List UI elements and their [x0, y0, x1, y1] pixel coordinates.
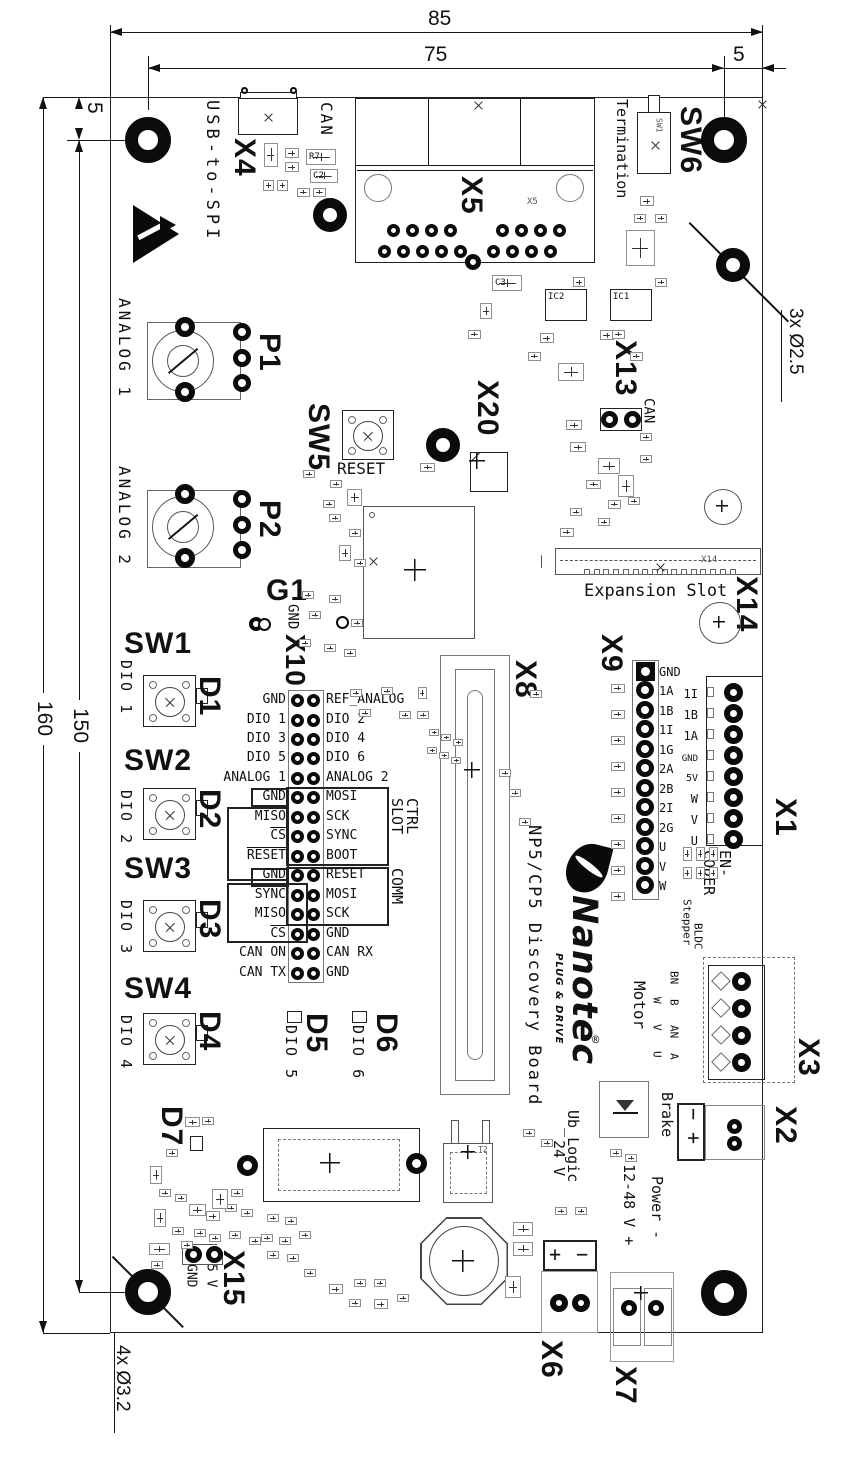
refdes: IC2	[548, 292, 564, 302]
smd-pad	[655, 278, 667, 287]
smd-pad	[381, 687, 393, 695]
label-stepper: Stepper	[681, 899, 693, 945]
smd-pad	[634, 214, 646, 223]
smd-pad	[324, 644, 336, 652]
label-x6: X6	[536, 1340, 566, 1379]
esd-warning-hand	[160, 216, 176, 234]
dim-line-5-right	[724, 68, 786, 69]
dim-board-width: 85	[428, 8, 451, 29]
smd-pad	[709, 847, 718, 861]
smd-pad	[303, 470, 315, 478]
x1-pin-label: V	[668, 811, 698, 829]
label-usb-to-spi: USB-to-SPI	[202, 100, 220, 242]
button-corner-dot	[182, 714, 190, 722]
smd-pad	[349, 529, 361, 537]
x9-pin	[636, 779, 654, 797]
smd-pad	[630, 352, 643, 361]
small-hole	[426, 428, 460, 462]
smd-pad	[608, 500, 621, 509]
button-corner-dot	[182, 939, 190, 947]
smd-pad	[513, 1242, 533, 1256]
smd-pad	[359, 709, 371, 717]
smd-pad	[570, 442, 586, 452]
pot-pin	[175, 484, 195, 504]
dim-small-holes-note: 3x Ø2.5	[786, 308, 805, 375]
x1-pin	[724, 683, 743, 702]
x14-pin	[720, 569, 726, 575]
smd-pad	[655, 214, 667, 223]
label-p2: P2	[254, 500, 284, 539]
x2-pin	[727, 1136, 742, 1151]
smd-pad	[418, 687, 427, 699]
smd-pad	[297, 188, 310, 197]
smd-pad	[349, 1299, 361, 1307]
pot-pin	[175, 548, 195, 568]
label-d1: D1	[194, 676, 224, 716]
x6-pin	[550, 1294, 568, 1312]
smd-pad	[344, 649, 356, 657]
label-g1-gnd: GND	[285, 604, 300, 629]
x5-pin	[506, 245, 519, 258]
label-can-x13: CAN	[641, 398, 656, 423]
capacitor-c2: C2	[310, 169, 338, 183]
smd-pad	[202, 1117, 214, 1125]
smd-pad	[626, 230, 655, 266]
x13-pin	[601, 411, 618, 428]
center-cross-mark	[320, 1153, 340, 1173]
button-corner-dot	[348, 447, 356, 455]
center-cross-mark	[461, 1145, 475, 1159]
dim-arrow	[75, 97, 83, 109]
smd-pad	[611, 762, 625, 771]
smd-pad	[541, 1139, 553, 1147]
termination-switch-refdes: SW1	[654, 118, 662, 132]
x2-pin	[727, 1119, 742, 1134]
center-cross-mark	[716, 500, 728, 512]
smd-pad	[267, 1251, 279, 1259]
smd-pad	[249, 1237, 261, 1245]
smd-pad	[267, 1214, 279, 1222]
x1-notch	[707, 834, 714, 844]
smd-pad	[555, 1207, 567, 1215]
x9-pin-label: U	[659, 838, 666, 856]
smd-pad	[212, 1189, 228, 1209]
x9-pin	[636, 740, 654, 758]
pot-pin	[233, 374, 251, 392]
smd-pad	[625, 1154, 637, 1162]
smd-pad	[611, 788, 625, 797]
label-x2: X2	[770, 1106, 800, 1145]
x1-pin	[724, 746, 743, 765]
label-bldc: BLDC	[692, 923, 704, 950]
smd-pad	[323, 500, 335, 508]
x1-notch	[707, 687, 714, 697]
ext-line	[110, 25, 111, 97]
button-corner-dot	[149, 827, 157, 835]
button-corner-dot	[149, 939, 157, 947]
x10-pin	[307, 714, 320, 727]
smd-pad	[339, 545, 351, 561]
x5-pin	[416, 245, 429, 258]
smd-pad	[628, 497, 640, 505]
smd-pad	[151, 1261, 163, 1269]
button-corner-dot	[149, 714, 157, 722]
label-dio5: DIO 5	[282, 1025, 298, 1080]
center-cross-mark	[404, 559, 426, 581]
x10-pin-label: CS	[196, 827, 286, 845]
transistor-t2-leg	[451, 1120, 459, 1144]
x10-pin-label: GND	[326, 964, 422, 982]
smd-pad	[354, 1279, 366, 1287]
smd-pad	[509, 789, 521, 797]
x5-pin	[378, 245, 391, 258]
board-title: NP5/CP5 Discovery Board	[524, 825, 542, 1106]
x14-pin	[700, 569, 706, 575]
label-dio6: DIO 6	[349, 1025, 365, 1080]
x5-pin	[525, 245, 538, 258]
smd-pad	[618, 475, 634, 497]
label-analog2: ANALOG 2	[115, 466, 132, 567]
smd-pad	[540, 333, 554, 343]
transistor-t2-leg	[482, 1120, 490, 1144]
label-encoder-line1: EN-	[716, 850, 732, 877]
x10-pin	[291, 869, 304, 882]
x14-pin	[681, 569, 687, 575]
dim-board-height: 160	[33, 693, 55, 745]
smd-pad	[329, 1284, 343, 1294]
x7-pin	[621, 1300, 637, 1316]
via	[406, 1153, 427, 1174]
x10-pin	[307, 791, 320, 804]
smd-pad	[206, 1211, 220, 1221]
smd-pad	[397, 1294, 409, 1302]
smd-pad	[640, 433, 652, 441]
x10-pin	[291, 889, 304, 902]
x10-pin	[307, 947, 320, 960]
x6-minus: −	[576, 1244, 588, 1265]
smd-pad	[696, 847, 705, 861]
x6-pin	[572, 1294, 590, 1312]
label-sw5: SW5	[303, 403, 333, 471]
dim-gap-top-left: 5	[84, 102, 105, 114]
smd-pad	[499, 769, 511, 777]
x10-pin	[291, 714, 304, 727]
label-x4: X4	[229, 138, 259, 177]
label-x13: X13	[610, 340, 640, 396]
x4-foot	[290, 87, 297, 94]
smd-pad	[468, 330, 481, 339]
smd-pad	[287, 1254, 299, 1262]
smd-pad	[611, 710, 625, 719]
x5-pin	[487, 245, 500, 258]
via	[465, 254, 481, 270]
x10-pin	[291, 928, 304, 941]
smd-pad	[441, 734, 451, 741]
led-d7	[190, 1136, 203, 1151]
x9-pin	[636, 857, 654, 875]
dim-arrow	[148, 64, 160, 72]
center-cross-mark	[469, 453, 485, 469]
smd-pad	[354, 559, 366, 567]
label-d6: D6	[371, 1013, 401, 1053]
refdes: C2	[313, 171, 324, 181]
mounting-hole	[701, 1270, 747, 1316]
ext-line	[43, 1333, 110, 1334]
x3-pin	[732, 1053, 751, 1072]
smd-pad	[330, 480, 342, 488]
refdes: C3	[495, 278, 506, 288]
smd-pad	[709, 867, 718, 879]
smd-pad	[304, 1269, 316, 1277]
small-hole	[716, 248, 750, 282]
button-corner-dot	[149, 794, 157, 802]
label-sw4: SW4	[124, 974, 192, 1004]
mounting-hole	[701, 117, 747, 163]
x5-divider	[357, 170, 593, 171]
x3-pin	[732, 999, 751, 1018]
x5-pin	[444, 224, 457, 237]
x10-pin-label: DIO 5	[196, 749, 286, 767]
smd-pad	[573, 277, 585, 287]
x3-pin	[732, 1026, 751, 1045]
x10-pin-label: DIO 3	[196, 730, 286, 748]
x5-pin	[387, 224, 400, 237]
button-corner-dot	[182, 1052, 190, 1060]
smd-pad	[528, 352, 541, 361]
label-dio3: DIO 3	[117, 900, 133, 955]
button-corner-dot	[149, 1019, 157, 1027]
nanotec-leaf-icon	[567, 843, 608, 893]
g1-test-ring	[336, 616, 349, 629]
x14-pin	[623, 569, 629, 575]
x10-pin	[291, 791, 304, 804]
x14-pin	[642, 569, 648, 575]
smd-pad	[453, 739, 463, 746]
x10-pin	[291, 772, 304, 785]
smd-pad	[558, 363, 584, 381]
x10-pin-label: RESET	[326, 866, 422, 884]
x14-pin	[613, 569, 619, 575]
smd-pad	[277, 180, 288, 191]
label-p1: P1	[254, 333, 284, 372]
connector-x4-lip	[240, 92, 297, 99]
x5-pin	[544, 245, 557, 258]
label-x20: X20	[472, 380, 502, 436]
smd-pad	[429, 729, 439, 736]
button-corner-dot	[348, 416, 356, 424]
smd-pad	[159, 1189, 171, 1197]
ext-line	[762, 25, 763, 97]
pot-pin	[233, 323, 251, 341]
x10-pin-label: SCK	[326, 808, 422, 826]
dim-arrow	[75, 1280, 83, 1292]
nanotec-tagline: PLUG & DRIVE	[553, 953, 563, 1044]
x10-pin-label: MOSI	[326, 788, 422, 806]
x9-pin	[636, 701, 654, 719]
button-corner-dot	[149, 1052, 157, 1060]
smd-pad	[309, 611, 321, 619]
smd-pad	[181, 1241, 193, 1249]
x3-bldc-pin: W	[651, 997, 663, 1004]
x9-pin-label: W	[659, 877, 666, 895]
smd-pad	[611, 840, 625, 849]
pot-pin	[233, 541, 251, 559]
button-corner-dot	[149, 681, 157, 689]
label-power-line1: Power -	[648, 1176, 664, 1239]
x5-mount-circle	[364, 174, 392, 202]
x10-pin	[307, 694, 320, 707]
x10-pin	[307, 733, 320, 746]
smd-pad	[154, 1209, 166, 1227]
x14-pin	[603, 569, 609, 575]
resistor-r7: R7	[306, 149, 336, 165]
x3-bldc-pin: V	[651, 1024, 663, 1031]
x1-pin-label: 1I	[668, 685, 698, 703]
label-reset: RESET	[337, 461, 385, 478]
x10-pin-label: ANALOG 2	[326, 769, 422, 787]
x5-pin	[397, 245, 410, 258]
smd-pad	[427, 747, 437, 754]
smd-pad	[241, 1209, 253, 1217]
led-d6	[352, 1011, 367, 1023]
smd-pad	[285, 148, 299, 158]
ext-line	[781, 310, 782, 402]
smd-pad	[611, 892, 625, 901]
x3-stepper-pin: BN	[668, 971, 680, 984]
x10-pin-label: DIO 4	[326, 730, 422, 748]
smd-pad	[329, 514, 341, 522]
dim-line-75	[148, 68, 724, 69]
chip-ic1: IC1	[610, 289, 652, 321]
label-d4: D4	[194, 1011, 224, 1051]
label-dio1: DIO 1	[117, 660, 133, 715]
refdes-t2: T2	[478, 1146, 488, 1154]
x9-pin-label: V	[659, 858, 666, 876]
x5-pin	[406, 224, 419, 237]
x3-stepper-pin: A	[668, 1053, 680, 1060]
dim-mount-holes-note: 4x Ø3.2	[113, 1345, 132, 1412]
center-cross-mark	[634, 1286, 648, 1300]
x10-pin	[307, 830, 320, 843]
smd-pad	[505, 1276, 521, 1298]
button-corner-dot	[182, 681, 190, 689]
brake-minus: −	[683, 1108, 704, 1120]
x5-divider	[355, 165, 595, 166]
label-d2: D2	[194, 789, 224, 829]
chip-main-pin1-dot	[369, 512, 375, 518]
smd-pad	[566, 420, 582, 430]
label-d5: D5	[301, 1013, 331, 1053]
dim-line-85	[110, 32, 763, 33]
x10-pin-label: ANALOG 1	[196, 769, 286, 787]
label-can-top: CAN	[317, 102, 334, 137]
x10-pin-label: SYNC	[326, 827, 422, 845]
x3-pin	[732, 972, 751, 991]
label-sw1: SW1	[124, 629, 192, 659]
x5-divider	[428, 98, 429, 165]
dim-arrow	[75, 128, 83, 140]
x9-pin	[636, 818, 654, 836]
smd-pad	[530, 690, 542, 698]
via	[237, 1155, 258, 1176]
x5-mount-circle	[556, 174, 584, 202]
x1-notch	[707, 729, 714, 739]
x10-pin	[291, 830, 304, 843]
smd-pad	[299, 639, 311, 647]
x10-pin	[291, 694, 304, 707]
x14-pin	[594, 569, 600, 575]
smd-pad	[374, 1279, 386, 1287]
dim-gap-top-right: 5	[733, 44, 745, 65]
smd-pad	[285, 1217, 297, 1225]
dim-arrow	[75, 140, 83, 152]
x1-pin	[724, 704, 743, 723]
smd-pad	[420, 463, 435, 472]
label-termination: Termination	[613, 99, 629, 198]
x3-stepper-pin: B	[668, 999, 680, 1006]
smd-pad	[189, 1204, 206, 1216]
x14-pin	[710, 569, 716, 575]
smd-pad	[611, 866, 625, 875]
diode-bar	[613, 1112, 638, 1114]
brake-plus: +	[683, 1132, 704, 1144]
smd-pad	[612, 330, 625, 339]
ext-line	[43, 97, 110, 98]
smd-pad	[279, 1237, 291, 1245]
x1-pin-label: 1A	[668, 727, 698, 745]
smd-pad	[261, 1234, 273, 1242]
x10-pin	[291, 850, 304, 863]
x9-pin	[636, 876, 654, 894]
x9-pin	[636, 681, 654, 699]
pot-pin	[233, 516, 251, 534]
smd-pad	[451, 757, 461, 764]
smd-pad	[231, 1189, 243, 1197]
smd-pad	[640, 196, 654, 206]
x5-pin	[435, 245, 448, 258]
x10-pin	[291, 967, 304, 980]
button-corner-dot	[182, 906, 190, 914]
x14-pin	[584, 569, 590, 575]
x10-pin-label: CAN ON	[196, 944, 286, 962]
label-x15: X15	[218, 1250, 248, 1306]
x1-pin-label: 1B	[668, 706, 698, 724]
button-corner-dot	[182, 1019, 190, 1027]
x7-pin	[648, 1300, 664, 1316]
x9-pin	[636, 798, 654, 816]
x10-pin	[291, 752, 304, 765]
x10-pin	[307, 772, 320, 785]
x5-pin	[553, 224, 566, 237]
smd-pad	[209, 1234, 221, 1242]
smd-pad	[570, 508, 582, 516]
label-sw3: SW3	[124, 854, 192, 884]
label-dio4: DIO 4	[117, 1015, 133, 1070]
nanotec-registered: ®	[592, 1033, 599, 1047]
label-analog1: ANALOG 1	[115, 298, 132, 399]
smd-pad	[598, 458, 620, 474]
smd-pad	[519, 818, 531, 826]
smd-pad	[439, 752, 449, 759]
x14-pin	[671, 569, 677, 575]
smd-pad	[264, 143, 278, 167]
x1-pin-label: GND	[668, 750, 698, 768]
x10-pin-label: SCK	[326, 905, 422, 923]
pcb-assembly-drawing: 85 75 5 5 160 150 4x Ø3.2 3x Ø2.5 USB-to…	[0, 0, 841, 1457]
x10-pin	[307, 967, 320, 980]
x10-pin-label: RESET	[196, 847, 286, 865]
label-d3: D3	[194, 899, 224, 939]
